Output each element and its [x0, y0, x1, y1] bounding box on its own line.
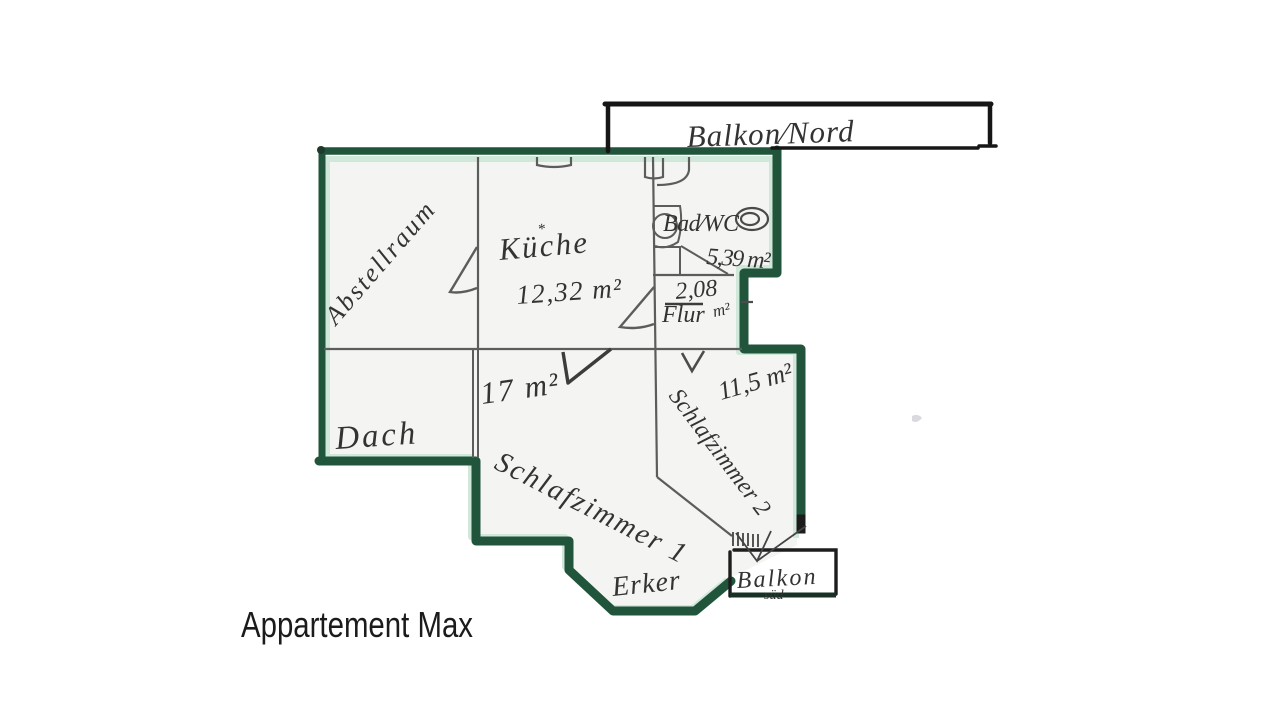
svg-text:Dach: Dach — [333, 415, 416, 457]
svg-text:Bad∕WC: Bad∕WC — [663, 211, 740, 237]
svg-text:5,39 m²: 5,39 m² — [706, 244, 772, 274]
svg-text:süd: süd — [764, 588, 784, 603]
svg-text:Balkon∕Nord: Balkon∕Nord — [686, 113, 855, 154]
svg-text:Appartement Max: Appartement Max — [241, 604, 473, 645]
svg-text:2,08: 2,08 — [674, 275, 718, 305]
svg-text:Flur: Flur — [661, 302, 705, 328]
